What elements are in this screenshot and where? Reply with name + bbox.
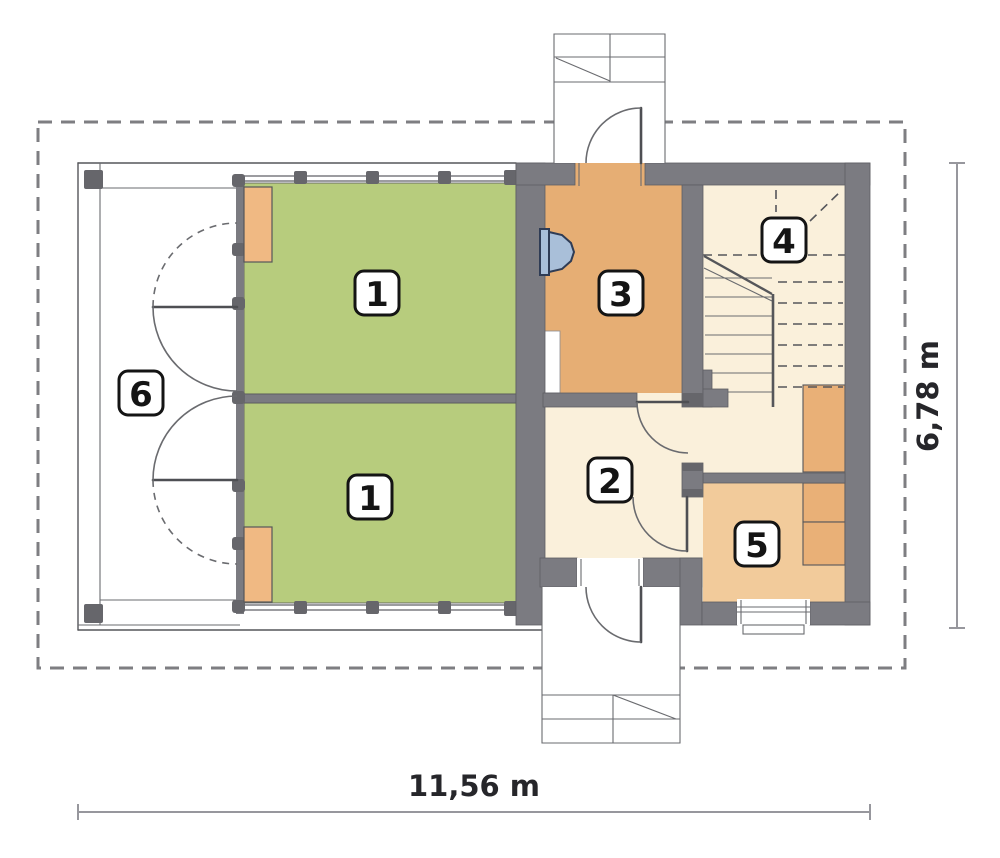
svg-text:3: 3 [609,275,633,315]
wall-room3-stairs [682,185,703,407]
room-label-5: 5 [735,522,779,566]
svg-text:5: 5 [745,526,769,566]
doorway-floor [575,163,645,187]
wall-south-b [810,602,870,625]
floor-plan-drawing: 1 1 2 3 4 5 6 11,56 m [0,0,1000,858]
room-label-3: 3 [599,271,643,315]
wall-east [845,163,870,625]
carport-post [84,604,103,623]
wall-room3-south [543,393,637,407]
dimension-height: 6,78 m [911,163,965,628]
wall-south-hall-a [540,558,577,587]
bay-doors [153,223,237,564]
room-label-4: 4 [762,218,806,262]
wall-room5-north [703,473,845,483]
door-swing-dashed [153,480,237,564]
south-door-opening [577,558,643,587]
svg-text:4: 4 [772,222,796,262]
door-swing-dashed [153,223,237,307]
wall-stair-newel-b [703,389,728,407]
svg-text:2: 2 [598,462,622,502]
bay-divider-wall [236,394,516,403]
svg-text:6: 6 [129,375,153,415]
room-label-2: 2 [588,458,632,502]
window-sill [743,625,804,634]
wardrobe [803,385,845,472]
wall-south-a [702,602,737,625]
height-label: 6,78 m [911,340,945,452]
room-label-6: 6 [119,371,163,415]
floor-plan: 1 1 2 3 4 5 6 11,56 m [0,0,1000,858]
carport-post [84,170,103,189]
dimension-width: 11,56 m [78,769,870,820]
wall-north-a [516,163,575,185]
door-swing [153,307,237,391]
wardrobe [803,483,845,522]
wall-connector [680,558,702,625]
svg-text:1: 1 [365,275,389,315]
svg-text:1: 1 [358,479,382,519]
door-swing [153,396,237,480]
window-room5 [737,599,810,634]
room-label-1-lower: 1 [348,475,392,519]
width-label: 11,56 m [408,769,540,803]
wardrobe [803,522,845,565]
garage-bays [153,170,518,616]
wall-north-b [645,163,870,185]
room-label-1-upper: 1 [355,271,399,315]
